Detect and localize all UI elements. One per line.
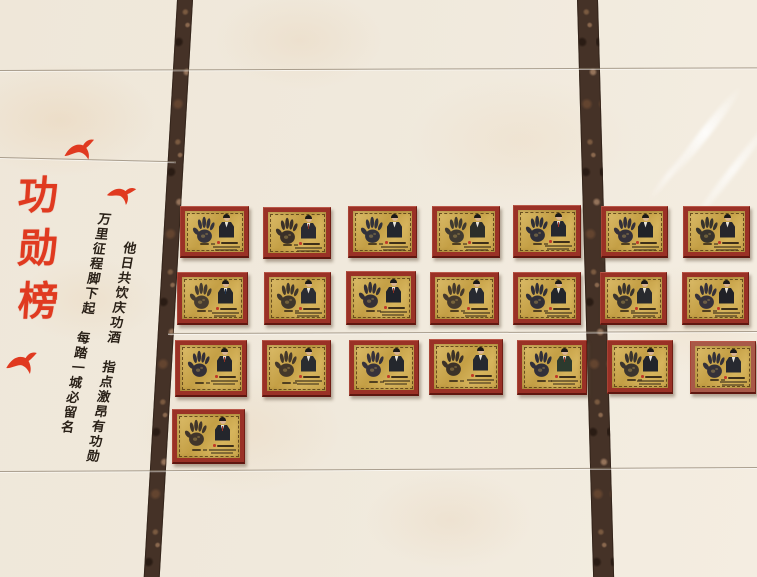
engraved-text-line bbox=[295, 380, 322, 382]
portrait-shirt bbox=[644, 222, 648, 228]
red-seal-dot bbox=[467, 307, 470, 310]
name-engraving bbox=[471, 374, 492, 377]
name-engraving bbox=[724, 376, 745, 379]
gold-plate bbox=[354, 345, 414, 390]
engraved-text-line bbox=[211, 452, 233, 454]
engraved-text-line bbox=[639, 383, 661, 385]
name-engraving bbox=[468, 241, 489, 244]
engraved-text-line bbox=[215, 249, 237, 251]
red-seal-dot bbox=[387, 375, 390, 378]
portrait-suit bbox=[551, 288, 566, 304]
portrait-head bbox=[731, 350, 737, 356]
portrait-suit bbox=[301, 356, 316, 372]
gold-plate bbox=[182, 277, 243, 319]
portrait-shirt bbox=[475, 288, 479, 294]
honor-roll-title: 功 勋 榜 bbox=[12, 170, 64, 329]
portrait-head bbox=[725, 215, 731, 221]
engraved-text-line bbox=[383, 249, 405, 251]
tile-seam bbox=[0, 67, 757, 71]
plaque-r2c3 bbox=[346, 271, 416, 325]
portrait-head bbox=[478, 348, 484, 354]
engraved-text-line bbox=[637, 380, 664, 382]
portrait-hair bbox=[555, 213, 562, 217]
portrait-shirt bbox=[393, 222, 397, 228]
plaque-r1c5 bbox=[513, 205, 581, 258]
portrait-shirt bbox=[479, 355, 483, 361]
portrait-hair bbox=[647, 348, 654, 352]
plaque-r3c5 bbox=[517, 340, 587, 395]
red-seal-dot bbox=[641, 375, 644, 378]
tie bbox=[308, 224, 310, 230]
name-engraving bbox=[213, 444, 234, 447]
portrait-head bbox=[222, 349, 228, 355]
engraved-text-line bbox=[209, 449, 236, 451]
gold-plate bbox=[351, 276, 411, 319]
portrait-hair bbox=[221, 348, 228, 352]
portrait-hair bbox=[305, 280, 312, 284]
portrait-hair bbox=[305, 215, 312, 219]
portrait-hair bbox=[473, 280, 480, 284]
engraved-text-line bbox=[464, 246, 491, 248]
red-seal-dot bbox=[471, 374, 474, 377]
engraved-text-line bbox=[213, 246, 240, 248]
plaque-r1c1 bbox=[180, 206, 249, 258]
red-seal-dot bbox=[216, 307, 219, 310]
plaque-r1c4 bbox=[432, 206, 500, 258]
portrait-photo bbox=[726, 350, 741, 374]
portrait-hair bbox=[723, 280, 730, 284]
handprint-icon bbox=[184, 348, 215, 381]
engraved-text-line bbox=[545, 245, 572, 247]
red-seal-dot bbox=[385, 241, 388, 244]
portrait-head bbox=[643, 215, 649, 221]
portrait-head bbox=[306, 349, 312, 355]
portrait-hair bbox=[730, 349, 737, 353]
handprint-signature bbox=[195, 382, 204, 384]
handprint-signature bbox=[283, 244, 292, 246]
name-engraving bbox=[549, 307, 570, 310]
plaque-r2c6 bbox=[600, 272, 667, 325]
gold-plate bbox=[180, 345, 242, 391]
handprint-signature bbox=[703, 243, 712, 245]
portrait-shirt bbox=[726, 222, 730, 228]
name-engraving bbox=[385, 241, 406, 244]
portrait-shirt bbox=[732, 357, 736, 363]
handprint-signature bbox=[192, 449, 201, 451]
portrait-hair bbox=[391, 214, 398, 218]
portrait-suit bbox=[557, 356, 572, 372]
portrait-suit bbox=[387, 222, 402, 238]
plaque-r2c1 bbox=[177, 272, 248, 325]
portrait-head bbox=[394, 349, 400, 355]
portrait-suit bbox=[637, 288, 652, 304]
portrait-head bbox=[392, 215, 398, 221]
engraved-text-line bbox=[547, 248, 569, 250]
plaque-r2c7 bbox=[682, 272, 749, 325]
portrait-head bbox=[224, 215, 230, 221]
tile-seam bbox=[0, 467, 757, 472]
portrait-photo bbox=[215, 418, 230, 442]
portrait-photo bbox=[386, 280, 401, 304]
portrait-hair bbox=[219, 417, 226, 421]
engraved-text-line bbox=[467, 379, 494, 381]
engraved-text-line bbox=[463, 312, 490, 314]
red-seal-dot bbox=[636, 241, 639, 244]
engraved-text-line bbox=[465, 315, 487, 317]
portrait-hair bbox=[474, 214, 481, 218]
portrait-shirt bbox=[476, 222, 480, 228]
tile-glare bbox=[646, 147, 691, 203]
portrait-shirt bbox=[643, 288, 647, 294]
engraved-text-line bbox=[295, 247, 322, 249]
engraved-text-line bbox=[722, 384, 744, 386]
title-char-3: 榜 bbox=[16, 276, 60, 329]
engraved-text-line bbox=[297, 315, 319, 317]
tie bbox=[564, 357, 566, 363]
plaque-r3c2 bbox=[262, 340, 331, 397]
name-engraving bbox=[299, 242, 320, 245]
portrait-photo bbox=[218, 281, 233, 305]
name-engraving bbox=[549, 240, 570, 243]
portrait-shirt bbox=[225, 222, 229, 228]
portrait-hair bbox=[561, 348, 568, 352]
gold-plate bbox=[268, 212, 326, 253]
portrait-suit bbox=[643, 356, 658, 372]
portrait-suit bbox=[469, 288, 484, 304]
plaque-r1c2 bbox=[263, 207, 331, 259]
engraved-text-line bbox=[547, 315, 569, 317]
plaque-r3c1 bbox=[175, 340, 247, 397]
red-seal-dot bbox=[549, 307, 552, 310]
portrait-suit bbox=[389, 356, 404, 372]
handprint-signature bbox=[449, 380, 458, 382]
handprint-signature bbox=[627, 379, 636, 381]
plaque-r4c1 bbox=[172, 409, 245, 464]
portrait-photo bbox=[719, 281, 734, 305]
plaque-r2c2 bbox=[264, 272, 331, 325]
portrait-suit bbox=[719, 288, 734, 304]
portrait-photo bbox=[301, 349, 316, 373]
portrait-photo bbox=[217, 349, 232, 373]
portrait-suit bbox=[720, 222, 735, 238]
tie bbox=[222, 426, 224, 432]
portrait-shirt bbox=[649, 356, 653, 362]
name-engraving bbox=[299, 307, 320, 310]
name-engraving bbox=[387, 375, 408, 378]
red-seal-dot bbox=[717, 307, 720, 310]
portrait-head bbox=[642, 281, 648, 287]
portrait-suit bbox=[638, 222, 653, 238]
gold-plate bbox=[518, 210, 576, 252]
portrait-photo bbox=[301, 216, 316, 240]
portrait-suit bbox=[217, 356, 232, 372]
portrait-suit bbox=[301, 288, 316, 304]
portrait-head bbox=[220, 418, 226, 424]
handprint-signature bbox=[620, 310, 629, 312]
portrait-shirt bbox=[307, 288, 311, 294]
name-engraving bbox=[555, 375, 576, 378]
red-seal-dot bbox=[718, 241, 721, 244]
plaque-r1c3 bbox=[348, 206, 417, 258]
handprint-icon bbox=[355, 279, 386, 312]
name-engraving bbox=[641, 375, 662, 378]
portrait-suit bbox=[473, 355, 488, 371]
engraved-text-line bbox=[382, 314, 404, 316]
handprint-icon bbox=[271, 348, 302, 381]
handprint-signature bbox=[537, 380, 546, 382]
plaque-r3c4 bbox=[429, 339, 503, 395]
honor-wall-photo: 功 勋 榜 他日共饮庆功酒 指点激昂有功勋 万里征程脚下起 每踏一城必留名 bbox=[0, 0, 757, 577]
name-engraving bbox=[467, 307, 488, 310]
engraved-text-line bbox=[545, 312, 572, 314]
name-engraving bbox=[215, 375, 236, 378]
tie bbox=[224, 357, 226, 363]
red-seal-dot bbox=[468, 241, 471, 244]
portrait-head bbox=[648, 349, 654, 355]
portrait-head bbox=[306, 281, 312, 287]
engraved-text-line bbox=[716, 249, 738, 251]
engraved-text-line bbox=[553, 383, 575, 385]
gold-plate bbox=[177, 414, 240, 458]
engraved-text-line bbox=[715, 315, 737, 317]
portrait-photo bbox=[557, 349, 572, 373]
handprint-icon bbox=[358, 348, 389, 381]
portrait-photo bbox=[219, 215, 234, 239]
portrait-head bbox=[475, 215, 481, 221]
handprint-icon bbox=[439, 280, 470, 313]
tie bbox=[225, 289, 227, 295]
gold-plate bbox=[522, 345, 582, 389]
engraved-text-line bbox=[714, 246, 741, 248]
handprint-icon bbox=[181, 417, 212, 450]
portrait-hair bbox=[724, 214, 731, 218]
handprint-signature bbox=[284, 310, 293, 312]
plaque-r3c7 bbox=[690, 341, 756, 394]
handprint-signature bbox=[366, 310, 375, 312]
portrait-head bbox=[556, 281, 562, 287]
title-char-1: 功 bbox=[16, 170, 60, 223]
portrait-photo bbox=[637, 281, 652, 305]
red-seal-dot bbox=[299, 242, 302, 245]
portrait-suit bbox=[386, 287, 401, 303]
red-seal-dot bbox=[213, 444, 216, 447]
red-seal-dot bbox=[299, 307, 302, 310]
portrait-photo bbox=[643, 349, 658, 373]
gold-plate bbox=[353, 211, 412, 252]
portrait-suit bbox=[470, 222, 485, 238]
portrait-photo bbox=[470, 215, 485, 239]
portrait-hair bbox=[642, 214, 649, 218]
portrait-hair bbox=[223, 214, 230, 218]
handprint-signature bbox=[702, 310, 711, 312]
portrait-suit bbox=[219, 222, 234, 238]
handprint-signature bbox=[533, 243, 542, 245]
portrait-shirt bbox=[307, 356, 311, 362]
handprint-signature bbox=[197, 310, 206, 312]
gold-plate bbox=[687, 277, 744, 319]
handprint-icon bbox=[438, 347, 469, 380]
portrait-hair bbox=[390, 279, 397, 283]
portrait-photo bbox=[720, 215, 735, 239]
handprint-signature bbox=[621, 243, 630, 245]
name-engraving bbox=[636, 241, 657, 244]
engraved-text-line bbox=[634, 249, 656, 251]
name-engraving bbox=[717, 307, 738, 310]
portrait-suit bbox=[218, 288, 233, 304]
engraved-text-line bbox=[632, 246, 659, 248]
portrait-photo bbox=[638, 215, 653, 239]
portrait-suit bbox=[726, 357, 741, 373]
handprint-signature bbox=[533, 310, 542, 312]
engraved-text-line bbox=[213, 383, 235, 385]
handprint-signature bbox=[450, 310, 459, 312]
handprint-signature bbox=[368, 243, 377, 245]
red-seal-dot bbox=[635, 307, 638, 310]
handprint-signature bbox=[369, 381, 378, 383]
engraved-text-line bbox=[380, 311, 407, 313]
handprint-icon bbox=[186, 280, 217, 313]
engraved-text-line bbox=[211, 380, 238, 382]
gold-plate bbox=[606, 211, 663, 252]
name-engraving bbox=[299, 375, 320, 378]
name-engraving bbox=[635, 307, 656, 310]
tie bbox=[558, 222, 560, 228]
portrait-hair bbox=[305, 348, 312, 352]
gold-plate bbox=[612, 345, 668, 388]
title-char-2: 勋 bbox=[16, 223, 60, 276]
plaque-r1c6 bbox=[601, 206, 668, 258]
name-engraving bbox=[216, 307, 237, 310]
red-seal-dot bbox=[217, 241, 220, 244]
portrait-hair bbox=[222, 280, 229, 284]
plaque-r2c4 bbox=[430, 272, 499, 325]
red-seal-dot bbox=[724, 376, 727, 379]
red-seal-dot bbox=[555, 375, 558, 378]
plaque-r3c3 bbox=[349, 340, 419, 396]
portrait-photo bbox=[551, 281, 566, 305]
engraved-text-line bbox=[713, 312, 740, 314]
portrait-suit bbox=[301, 223, 316, 239]
engraved-text-line bbox=[720, 381, 747, 383]
gold-plate bbox=[185, 211, 244, 252]
portrait-hair bbox=[393, 348, 400, 352]
gold-plate bbox=[695, 346, 751, 388]
handprint-signature bbox=[282, 382, 291, 384]
portrait-head bbox=[562, 349, 568, 355]
gold-plate bbox=[435, 277, 494, 319]
portrait-photo bbox=[469, 281, 484, 305]
portrait-head bbox=[391, 280, 397, 286]
gold-plate bbox=[267, 345, 326, 391]
portrait-photo bbox=[551, 214, 566, 238]
handprint-signature bbox=[710, 379, 719, 381]
engraved-text-line bbox=[466, 249, 488, 251]
handprint-icon bbox=[526, 348, 557, 381]
engraved-text-line bbox=[631, 312, 658, 314]
red-bird-icon bbox=[4, 350, 41, 379]
portrait-head bbox=[556, 214, 562, 220]
engraved-text-line bbox=[295, 312, 322, 314]
engraved-text-line bbox=[469, 382, 491, 384]
portrait-suit bbox=[215, 425, 230, 441]
gold-plate bbox=[605, 277, 662, 319]
portrait-photo bbox=[473, 348, 488, 372]
name-engraving bbox=[718, 241, 739, 244]
gold-plate bbox=[269, 277, 326, 319]
portrait-shirt bbox=[395, 356, 399, 362]
name-engraving bbox=[217, 241, 238, 244]
engraved-text-line bbox=[633, 315, 655, 317]
portrait-hair bbox=[477, 347, 484, 351]
gold-plate bbox=[688, 211, 745, 252]
red-seal-dot bbox=[384, 306, 387, 309]
handprint-signature bbox=[452, 243, 461, 245]
red-bird-icon bbox=[105, 183, 138, 209]
portrait-shirt bbox=[725, 288, 729, 294]
tie bbox=[393, 288, 395, 294]
plaque-r2c5 bbox=[513, 272, 581, 325]
portrait-hair bbox=[555, 280, 562, 284]
gold-plate bbox=[434, 344, 498, 389]
red-seal-dot bbox=[549, 240, 552, 243]
portrait-photo bbox=[387, 215, 402, 239]
portrait-suit bbox=[551, 221, 566, 237]
portrait-hair bbox=[641, 280, 648, 284]
name-engraving bbox=[384, 306, 405, 309]
plaque-r1c7 bbox=[683, 206, 750, 258]
engraved-text-line bbox=[381, 246, 408, 248]
plaque-r3c6 bbox=[607, 340, 673, 394]
portrait-head bbox=[724, 281, 730, 287]
engraved-text-line bbox=[212, 312, 239, 314]
tile-seam bbox=[168, 331, 757, 334]
engraved-text-line bbox=[383, 380, 410, 382]
engraved-text-line bbox=[297, 250, 319, 252]
gold-plate bbox=[437, 211, 495, 252]
red-bird-icon bbox=[61, 137, 99, 167]
handprint-signature bbox=[200, 243, 209, 245]
portrait-photo bbox=[389, 349, 404, 373]
red-seal-dot bbox=[215, 375, 218, 378]
red-seal-dot bbox=[299, 375, 302, 378]
engraved-text-line bbox=[385, 383, 407, 385]
engraved-text-line bbox=[551, 380, 578, 382]
engraved-text-line bbox=[297, 383, 319, 385]
portrait-photo bbox=[301, 281, 316, 305]
portrait-shirt bbox=[557, 288, 561, 294]
gold-plate bbox=[518, 277, 576, 319]
engraved-text-line bbox=[214, 315, 236, 317]
portrait-head bbox=[306, 216, 312, 222]
portrait-head bbox=[474, 281, 480, 287]
portrait-head bbox=[223, 281, 229, 287]
